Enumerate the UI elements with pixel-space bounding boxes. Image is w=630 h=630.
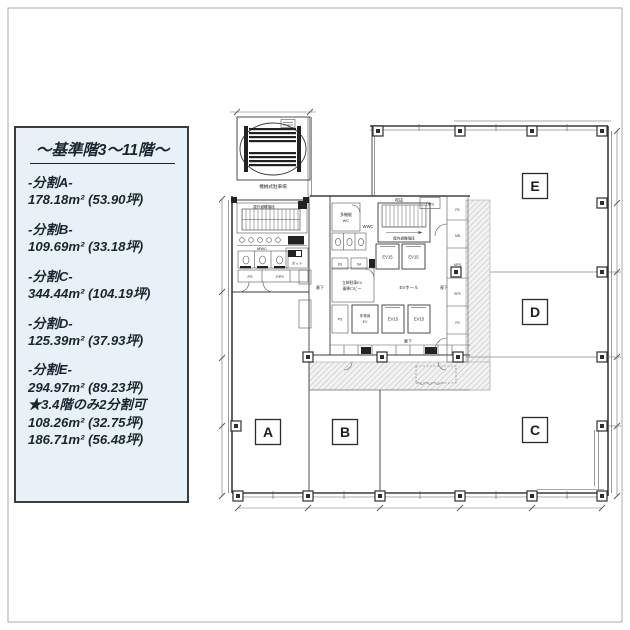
division-e-item: -分割E- 294.97m² (89.23坪) ★3.4階のみ2分割可 108.…: [28, 361, 177, 448]
ps-label: PS: [247, 275, 253, 279]
parking-ev-lobby-label: 立体駐車EV: [342, 280, 363, 285]
svg-text:E: E: [530, 178, 539, 194]
svg-text:乗降ロビー: 乗降ロビー: [343, 286, 362, 291]
wwc-label: WWC: [363, 224, 374, 229]
columns: [231, 126, 607, 501]
legend-title: ～基準階3～11階～: [30, 138, 175, 164]
svg-text:D: D: [530, 304, 540, 320]
division-name: -分割C-: [28, 268, 177, 285]
division-area: 125.39m² (37.93坪): [28, 332, 177, 349]
emergency-ev-label: 非常用: [360, 313, 371, 318]
dps-label: DPS: [426, 203, 434, 207]
division-area: 108.26m² (32.75坪): [28, 414, 177, 431]
division-note: ★3.4階のみ2分割可: [28, 396, 177, 413]
dimension-lines: [219, 109, 621, 511]
eps-label: EPS: [276, 275, 284, 279]
division-name: -分割B-: [28, 221, 177, 238]
oa-label: OA: [357, 263, 362, 267]
section-label-a: A: [256, 420, 281, 445]
section-label-c: C: [523, 418, 548, 443]
ev-hall-label: EVホール: [399, 285, 419, 290]
void-label: 吹抜: [395, 197, 403, 203]
pantry-label: ポット: [292, 261, 303, 266]
floorplan-page: 機械式駐車場: [0, 0, 630, 630]
ds-label: DS: [338, 263, 342, 267]
corridor-west-label: 廊下: [316, 284, 324, 290]
division-a-item: -分割A- 178.18m² (53.90坪): [28, 174, 177, 209]
section-label-b: B: [333, 420, 358, 445]
svg-text:WC: WC: [343, 218, 350, 223]
division-c-item: -分割C- 344.44m² (104.19坪): [28, 268, 177, 303]
division-area: 294.97m² (89.23坪): [28, 379, 177, 396]
elevator-label: EV15: [388, 317, 399, 322]
svg-text:C: C: [530, 422, 540, 438]
elevator-label: EV15: [382, 255, 393, 260]
outdoor-stairs-label: 屋外避難階段: [253, 204, 275, 209]
division-name: -分割D-: [28, 315, 177, 332]
svg-text:A: A: [263, 424, 273, 440]
division-area: 178.18m² (53.90坪): [28, 191, 177, 208]
left-wing: 屋外避難階段 MWC ポット PS EPS: [232, 200, 309, 292]
section-label-e: E: [523, 174, 548, 199]
section-label-d: D: [523, 300, 548, 325]
division-area: 344.44m² (104.19坪): [28, 285, 177, 302]
shaft-label: MPS: [454, 263, 461, 267]
division-lines: [309, 196, 608, 493]
building-outline: [229, 121, 612, 499]
legend-panel: ～基準階3～11階～ -分割A- 178.18m² (53.90坪) -分割B-…: [14, 126, 189, 503]
accessible-wc-label: 多機能: [340, 211, 352, 217]
division-d-item: -分割D- 125.39m² (37.93坪): [28, 315, 177, 350]
svg-text:B: B: [340, 424, 350, 440]
elevator-label: EV15: [414, 317, 425, 322]
svg-text:EV: EV: [363, 320, 368, 324]
division-name: -分割E-: [28, 361, 177, 378]
shaft-label: MB: [455, 234, 460, 238]
shaft-label: PS: [455, 321, 459, 325]
parking-label: 機械式駐車場: [259, 183, 287, 190]
division-area: 186.71m² (56.48坪): [28, 431, 177, 448]
indoor-stairs-label: 屋内避難階段: [393, 236, 415, 241]
corridor-south-label: 廊下: [404, 338, 412, 344]
elevator-label: EV15: [408, 255, 419, 260]
ps-core-label: PS: [338, 318, 343, 322]
division-b-item: -分割B- 109.69m² (33.18坪): [28, 221, 177, 256]
division-area: 109.69m² (33.18坪): [28, 238, 177, 255]
mechanical-parking: 機械式駐車場: [237, 117, 310, 190]
mwc-label: MWC: [257, 246, 267, 251]
division-name: -分割A-: [28, 174, 177, 191]
shaft-label: SPS: [454, 292, 460, 296]
shaft-label: PS: [455, 208, 459, 212]
